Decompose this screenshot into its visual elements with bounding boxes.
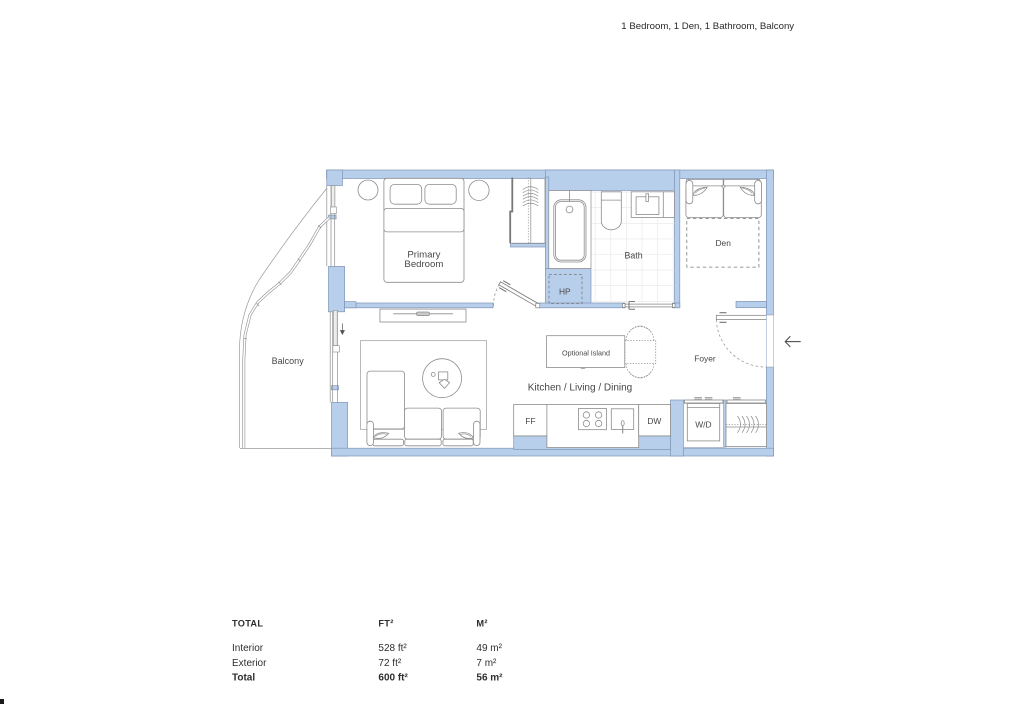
svg-text:W/D: W/D xyxy=(695,420,711,430)
svg-text:56 m²: 56 m² xyxy=(476,673,503,684)
svg-text:Optional Island: Optional Island xyxy=(562,348,610,357)
svg-text:528 ft²: 528 ft² xyxy=(378,643,407,654)
svg-text:Foyer: Foyer xyxy=(694,354,716,364)
svg-text:TOTAL: TOTAL xyxy=(232,619,263,629)
svg-text:HP: HP xyxy=(559,287,571,297)
svg-text:Interior: Interior xyxy=(232,643,264,654)
svg-text:72 ft²: 72 ft² xyxy=(378,658,401,669)
svg-text:Bedroom: Bedroom xyxy=(404,259,443,270)
svg-text:49 m²: 49 m² xyxy=(476,643,502,654)
svg-text:Balcony: Balcony xyxy=(272,356,305,366)
svg-text:7 m²: 7 m² xyxy=(476,658,497,669)
svg-text:Kitchen / Living / Dining: Kitchen / Living / Dining xyxy=(528,383,633,394)
svg-text:FF: FF xyxy=(525,416,535,426)
svg-text:FT²: FT² xyxy=(378,619,393,629)
svg-text:Total: Total xyxy=(232,673,255,684)
svg-text:Den: Den xyxy=(716,238,732,248)
svg-text:M²: M² xyxy=(476,619,487,629)
svg-text:Bath: Bath xyxy=(625,251,643,261)
svg-text:DW: DW xyxy=(647,416,661,426)
svg-text:Exterior: Exterior xyxy=(232,658,267,669)
svg-text:600 ft²: 600 ft² xyxy=(378,673,408,684)
svg-text:1 Bedroom, 1 Den, 1 Bathroom,: 1 Bedroom, 1 Den, 1 Bathroom, Balcony xyxy=(621,21,794,32)
